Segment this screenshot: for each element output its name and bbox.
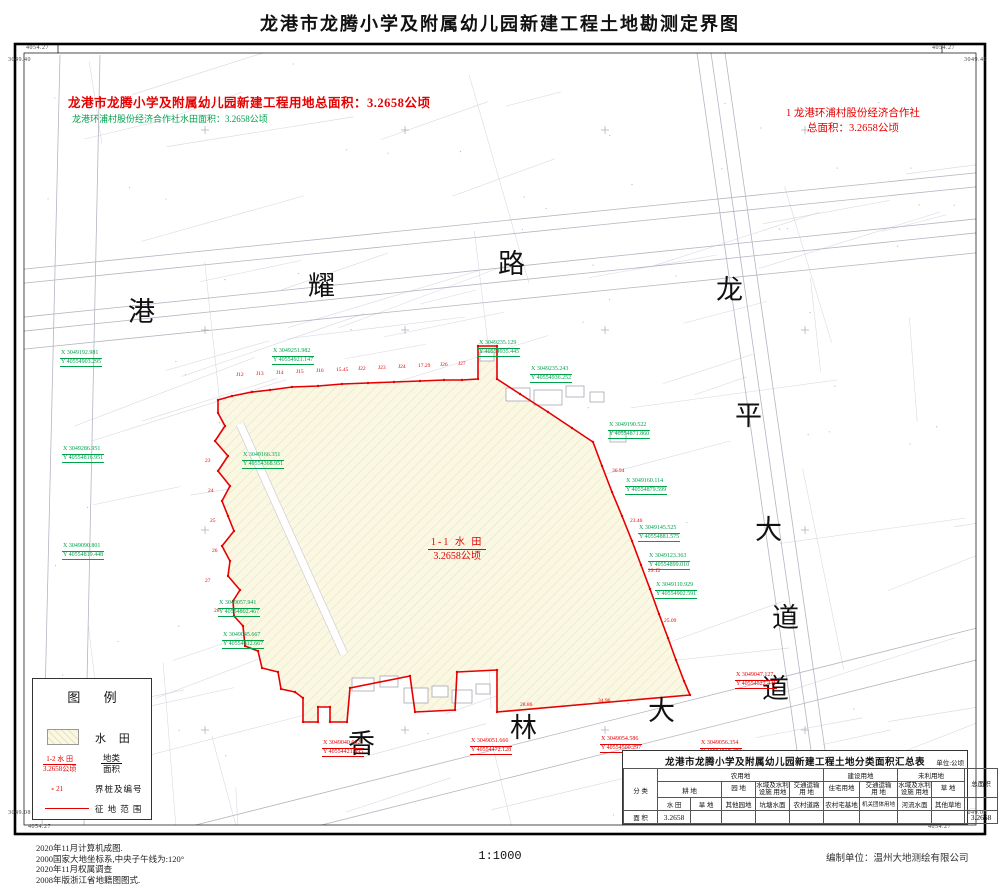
legend-class-bottom: 面积: [101, 764, 122, 774]
th-homestead: 农村宅基地: [824, 798, 860, 811]
owner-area: 总面积：3.2658公顷: [786, 121, 920, 136]
th-other-garden: 其他园地: [722, 798, 756, 811]
stake-number-label: J27: [458, 361, 466, 367]
building: [432, 686, 448, 697]
summary-table-unit: 单位:公顷: [936, 757, 964, 767]
total-area-annotation: 龙港市龙腾小学及附属幼儿园新建工程用地总面积：3.2658公顷: [68, 92, 430, 111]
stake-number-label: J26: [440, 362, 448, 368]
th-total: 总面积: [965, 769, 998, 798]
stake-number-label: J12: [236, 372, 244, 378]
legend-stake-label: 界桩及编号: [95, 783, 143, 795]
area-summary-table: 龙港市龙腾小学及附属幼儿园新建工程土地分类面积汇总表 单位:公顷 分 类 农用地…: [622, 750, 968, 825]
note-line: 2020年11月权属调查: [36, 864, 184, 875]
th-rural-road: 农村道路: [790, 798, 824, 811]
th-paddy: 水 田: [658, 798, 691, 811]
th-transport: 交通运输 用 地: [790, 782, 824, 798]
legend-paddy-label: 水 田: [95, 730, 135, 746]
coord-y: Y 40554871.860: [608, 431, 650, 440]
stake-number-label: 15.45: [336, 367, 348, 373]
corner-coord-bl-x: 4054.27: [28, 824, 51, 830]
stake-number-label: J22: [358, 366, 366, 372]
stake-number-label: 24: [208, 488, 214, 494]
th-construction: 建设用地: [824, 769, 898, 782]
td-v2: [722, 811, 756, 824]
stake-number-label: J23: [378, 365, 386, 371]
coordinate-label: X 3049235.129Y 40554935.445: [478, 340, 520, 357]
coord-x: X 3049090.801: [62, 543, 104, 552]
coord-y: Y 40554902.591: [655, 591, 697, 600]
stake-number-label: 34.96: [598, 698, 610, 704]
td-paddy-value: 3.2658: [658, 811, 691, 824]
td-v8: [932, 811, 965, 824]
td-v7: [898, 811, 932, 824]
stake-number-label: 25: [210, 518, 216, 524]
parcel-class-code: 1-1 水 田: [428, 536, 486, 550]
corner-coord-tl-x: 4054.27: [26, 45, 49, 51]
th-water-facility: 水域及水利 设施 用地: [756, 782, 790, 798]
paddy-field-swatch: [47, 729, 79, 745]
coordinate-label: X 3049145.525Y 40554881.575: [638, 525, 680, 542]
road-name-char: 林: [510, 714, 537, 742]
summary-table-title: 龙港市龙腾小学及附属幼儿园新建工程土地分类面积汇总表: [623, 754, 967, 768]
stake-number-label: 36.94: [612, 468, 624, 474]
coord-y: Y 40554921.147: [272, 357, 314, 366]
coord-x: X 3049056.354: [700, 740, 742, 749]
coordinate-label: X 3049190.522Y 40554871.860: [608, 422, 650, 439]
th-residential: 住宅用地: [824, 782, 860, 798]
coordinate-label: X 3049251.982Y 40554921.147: [272, 348, 314, 365]
td-area-label: 面 积: [624, 811, 658, 824]
coord-x: X 3049192.981: [60, 350, 102, 359]
corner-coord-tl-y: 3049.40: [8, 57, 31, 63]
stake-number-label: 23: [205, 458, 211, 464]
th-water-facility2: 水域及水利 设施 用地: [898, 782, 932, 798]
summary-table-grid: 分 类 农用地 建设用地 未利用地 总面积 耕 地 园 地 水域及水利 设施 用…: [623, 768, 998, 824]
legend-class-label: 地类 面积: [101, 753, 122, 774]
building: [566, 386, 584, 397]
road-name-char: 大: [755, 516, 782, 544]
legend-class-sample: 1-2 水 田 3.2658公顷: [43, 755, 76, 773]
coord-y: Y 40554816.951: [62, 455, 104, 464]
stake-number-label: 27: [205, 578, 211, 584]
legend-boundary-line-sample: [45, 808, 89, 809]
stake-number-label: J14: [276, 370, 284, 376]
coord-y: Y 40554472.128: [470, 747, 512, 756]
stake-number-label: 25.09: [664, 618, 676, 624]
coord-y: Y 40554819.448: [62, 552, 104, 561]
survey-map-sheet: 龙港市龙腾小学及附属幼儿园新建工程土地勘测定界图 4054.27 3049.40…: [0, 0, 1000, 890]
td-v6: [860, 811, 898, 824]
th-class: 分 类: [624, 769, 658, 811]
coordinate-label: X 3049286.951Y 40554816.951: [62, 446, 104, 463]
road-name-char: 龙: [716, 276, 743, 304]
stake-number-label: 17.29: [418, 363, 430, 369]
coord-x: X 3049190.522: [608, 422, 650, 431]
coord-x: X 3049040.662: [322, 740, 364, 749]
parcel-area-value: 3.2658公顷: [428, 550, 486, 563]
coordinate-label: X 3049045.667Y 40554812.667: [222, 632, 264, 649]
stake-number-label: J16: [316, 368, 324, 374]
coordinate-label: X 3049160.114Y 40554879.599: [625, 478, 667, 495]
road-name-char: 港: [128, 298, 155, 326]
coord-y: Y 40554903.295: [60, 359, 102, 368]
corner-coord-bl-y: 3049.08: [8, 810, 31, 816]
coord-x: X 3049286.951: [62, 446, 104, 455]
publisher: 编制单位：温州大地测绘有限公司: [826, 850, 969, 864]
road-name-char: 道: [772, 604, 799, 632]
coord-x: X 3049054.586: [600, 736, 642, 745]
building: [404, 688, 428, 703]
building: [590, 392, 604, 402]
corner-coord-tr-y: 3049.40: [964, 57, 987, 63]
coord-x: X 3049057.941: [218, 600, 260, 609]
coordinate-label: X 3049047.127Y 40554522.441: [735, 672, 777, 689]
coord-x: X 3049047.127: [735, 672, 777, 681]
th-transport2: 交通运输 用 地: [860, 782, 898, 798]
coord-y: Y 40554368.951: [242, 461, 284, 470]
coord-y: Y 40554802.467: [218, 609, 260, 618]
page-title: 龙港市龙腾小学及附属幼儿园新建工程土地勘测定界图: [0, 10, 1000, 36]
legend-boundary-label: 征 地 范 围: [95, 803, 142, 815]
td-v3: [756, 811, 790, 824]
coord-y: Y 40554881.575: [638, 534, 680, 543]
th-cultivated: 耕 地: [658, 782, 722, 798]
th-river: 河流水面: [898, 798, 932, 811]
coord-y: Y 40554421.895: [322, 749, 364, 758]
legend-sample-line1: 1-2 水 田: [43, 755, 76, 765]
th-agricultural: 农用地: [658, 769, 824, 782]
coord-y: Y 40554522.441: [735, 681, 777, 690]
coordinate-label: X 3049057.941Y 40554802.467: [218, 600, 260, 617]
coordinate-label: X 3049040.662Y 40554421.895: [322, 740, 364, 757]
td-total-value: 3.2658: [965, 811, 998, 824]
building: [476, 684, 490, 694]
building: [534, 390, 562, 405]
th-total-spacer: [965, 798, 998, 811]
coord-x: X 3049051.666: [470, 738, 512, 747]
stake-number-label: J15: [296, 369, 304, 375]
parcel-area-label: 1-1 水 田 3.2658公顷: [428, 536, 486, 563]
td-v5: [824, 811, 860, 824]
coord-y: Y 40554935.445: [478, 349, 520, 358]
map-scale: 1:1000: [440, 849, 560, 863]
th-other-grass: 其他草地: [932, 798, 965, 811]
stake-number-label: J13: [256, 371, 264, 377]
th-garden: 园 地: [722, 782, 756, 798]
coord-y: Y 40554812.667: [222, 641, 264, 650]
coord-x: X 3049160.114: [625, 478, 667, 487]
th-dryland: 旱 地: [691, 798, 722, 811]
coord-x: X 3049045.667: [222, 632, 264, 641]
stake-number-label: 29.12: [648, 568, 660, 574]
note-line: 2008年版浙江省地籍图图式.: [36, 875, 184, 886]
td-v1: [691, 811, 722, 824]
map-notes: 2020年11月计算机成图. 2000国家大地坐标系,中央子午线为:120° 2…: [36, 843, 184, 885]
cooperative-paddy-annotation: 龙港环浦村股份经济合作社水田面积：3.2658公顷: [72, 112, 268, 125]
coord-x: X 3049166.351: [242, 452, 284, 461]
coord-x: X 3049145.525: [638, 525, 680, 534]
road-name-char: 路: [498, 250, 525, 278]
coord-x: X 3049110.929: [655, 582, 697, 591]
owner-name: 1 龙港环浦村股份经济合作社: [786, 106, 920, 121]
legend-stake-sample: ∘ 21: [51, 785, 63, 793]
th-pond: 坑塘水面: [756, 798, 790, 811]
legend-title: 图 例: [33, 687, 151, 706]
legend-class-top: 地类: [101, 753, 122, 764]
coord-x: X 3049123.363: [648, 553, 690, 562]
legend-box: 图 例 水 田 1-2 水 田 3.2658公顷 地类 面积 ∘ 21 界桩及编…: [32, 678, 152, 820]
stake-number-label: 28.86: [520, 702, 532, 708]
corner-coord-tr-x: 4054.27: [932, 45, 955, 51]
th-grass: 草 地: [932, 782, 965, 798]
coordinate-label: X 3049192.981Y 40554903.295: [60, 350, 102, 367]
note-line: 2000国家大地坐标系,中央子午线为:120°: [36, 854, 184, 865]
road-name-char: 耀: [308, 272, 335, 300]
coord-x: X 3049251.982: [272, 348, 314, 357]
note-line: 2020年11月计算机成图.: [36, 843, 184, 854]
legend-sample-line2: 3.2658公顷: [43, 765, 76, 774]
stake-number-label: 26: [212, 548, 218, 554]
td-v4: [790, 811, 824, 824]
coordinate-label: X 3049110.929Y 40554902.591: [655, 582, 697, 599]
coord-y: Y 40554879.599: [625, 487, 667, 496]
th-org-land: 机关团体用地: [860, 798, 898, 811]
coord-x: X 3049235.129: [478, 340, 520, 349]
coordinate-label: X 3049235.243Y 40554936.252: [530, 366, 572, 383]
road-name-char: 平: [735, 402, 762, 430]
coord-x: X 3049235.243: [530, 366, 572, 375]
coordinate-label: X 3049166.351Y 40554368.951: [242, 452, 284, 469]
th-unused: 未利用地: [898, 769, 965, 782]
coord-y: Y 40554936.252: [530, 375, 572, 384]
owner-annotation: 1 龙港环浦村股份经济合作社 总面积：3.2658公顷: [786, 106, 920, 136]
coordinate-label: X 3049090.801Y 40554819.448: [62, 543, 104, 560]
coordinate-label: X 3049051.666Y 40554472.128: [470, 738, 512, 755]
road-name-char: 大: [648, 697, 675, 725]
stake-number-label: J24: [398, 364, 406, 370]
stake-number-label: 23.46: [630, 518, 642, 524]
stake-number-label: 28: [214, 608, 220, 614]
